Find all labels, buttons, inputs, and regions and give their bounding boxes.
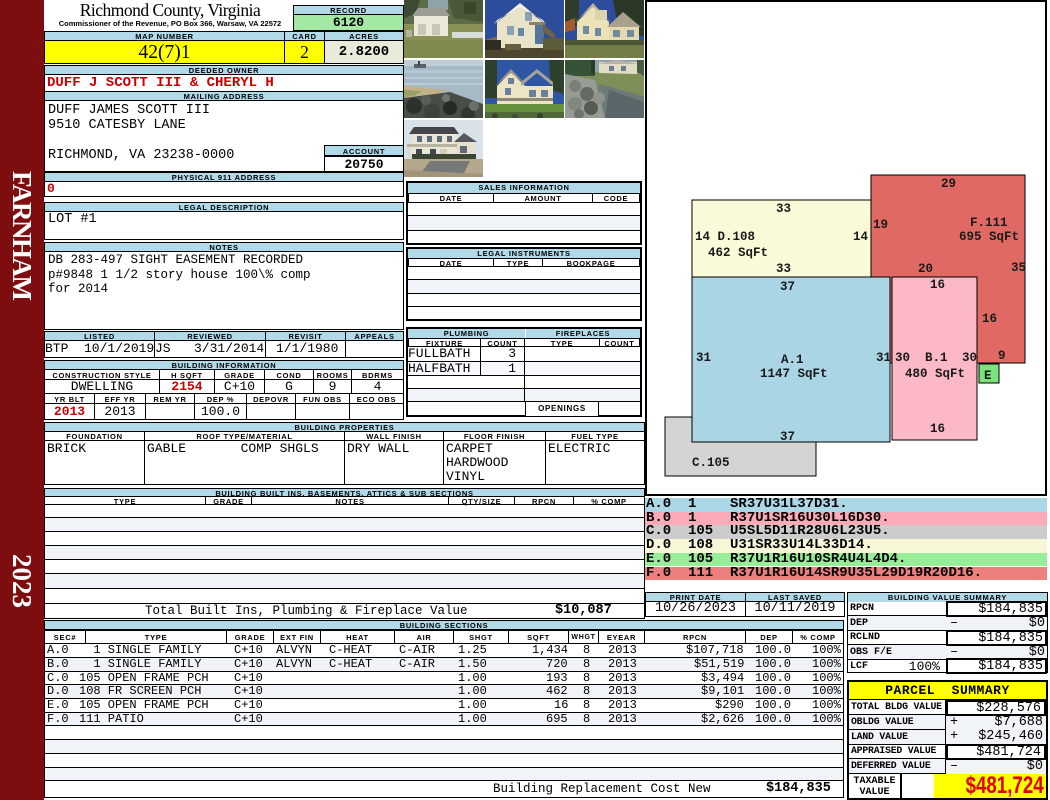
svg-text:462 SqFt: 462 SqFt [708, 246, 768, 260]
svg-text:37: 37 [780, 430, 795, 444]
svg-text:35: 35 [1011, 261, 1026, 275]
svg-text:695 SqFt: 695 SqFt [959, 230, 1019, 244]
svg-text:14: 14 [853, 230, 869, 244]
svg-text:29: 29 [941, 177, 956, 191]
svg-text:480 SqFt: 480 SqFt [905, 367, 965, 381]
svg-text:14 D.108: 14 D.108 [695, 230, 755, 244]
svg-text:1147 SqFt: 1147 SqFt [760, 367, 828, 381]
svg-text:16: 16 [930, 422, 945, 436]
svg-text:30: 30 [895, 351, 910, 365]
svg-text:B.1: B.1 [925, 351, 948, 365]
svg-text:31: 31 [876, 351, 891, 365]
svg-text:16: 16 [982, 312, 997, 326]
svg-text:16: 16 [930, 278, 945, 292]
svg-text:30: 30 [962, 351, 977, 365]
svg-text:C.105: C.105 [692, 456, 730, 470]
svg-text:33: 33 [776, 202, 791, 216]
svg-text:37: 37 [780, 280, 795, 294]
svg-text:33: 33 [776, 262, 791, 276]
svg-text:F.111: F.111 [970, 216, 1008, 230]
svg-text:9: 9 [998, 349, 1006, 363]
svg-text:19: 19 [873, 218, 888, 232]
svg-text:E: E [984, 369, 992, 383]
svg-text:20: 20 [918, 262, 933, 276]
svg-text:31: 31 [696, 351, 711, 365]
svg-text:A.1: A.1 [781, 353, 804, 367]
